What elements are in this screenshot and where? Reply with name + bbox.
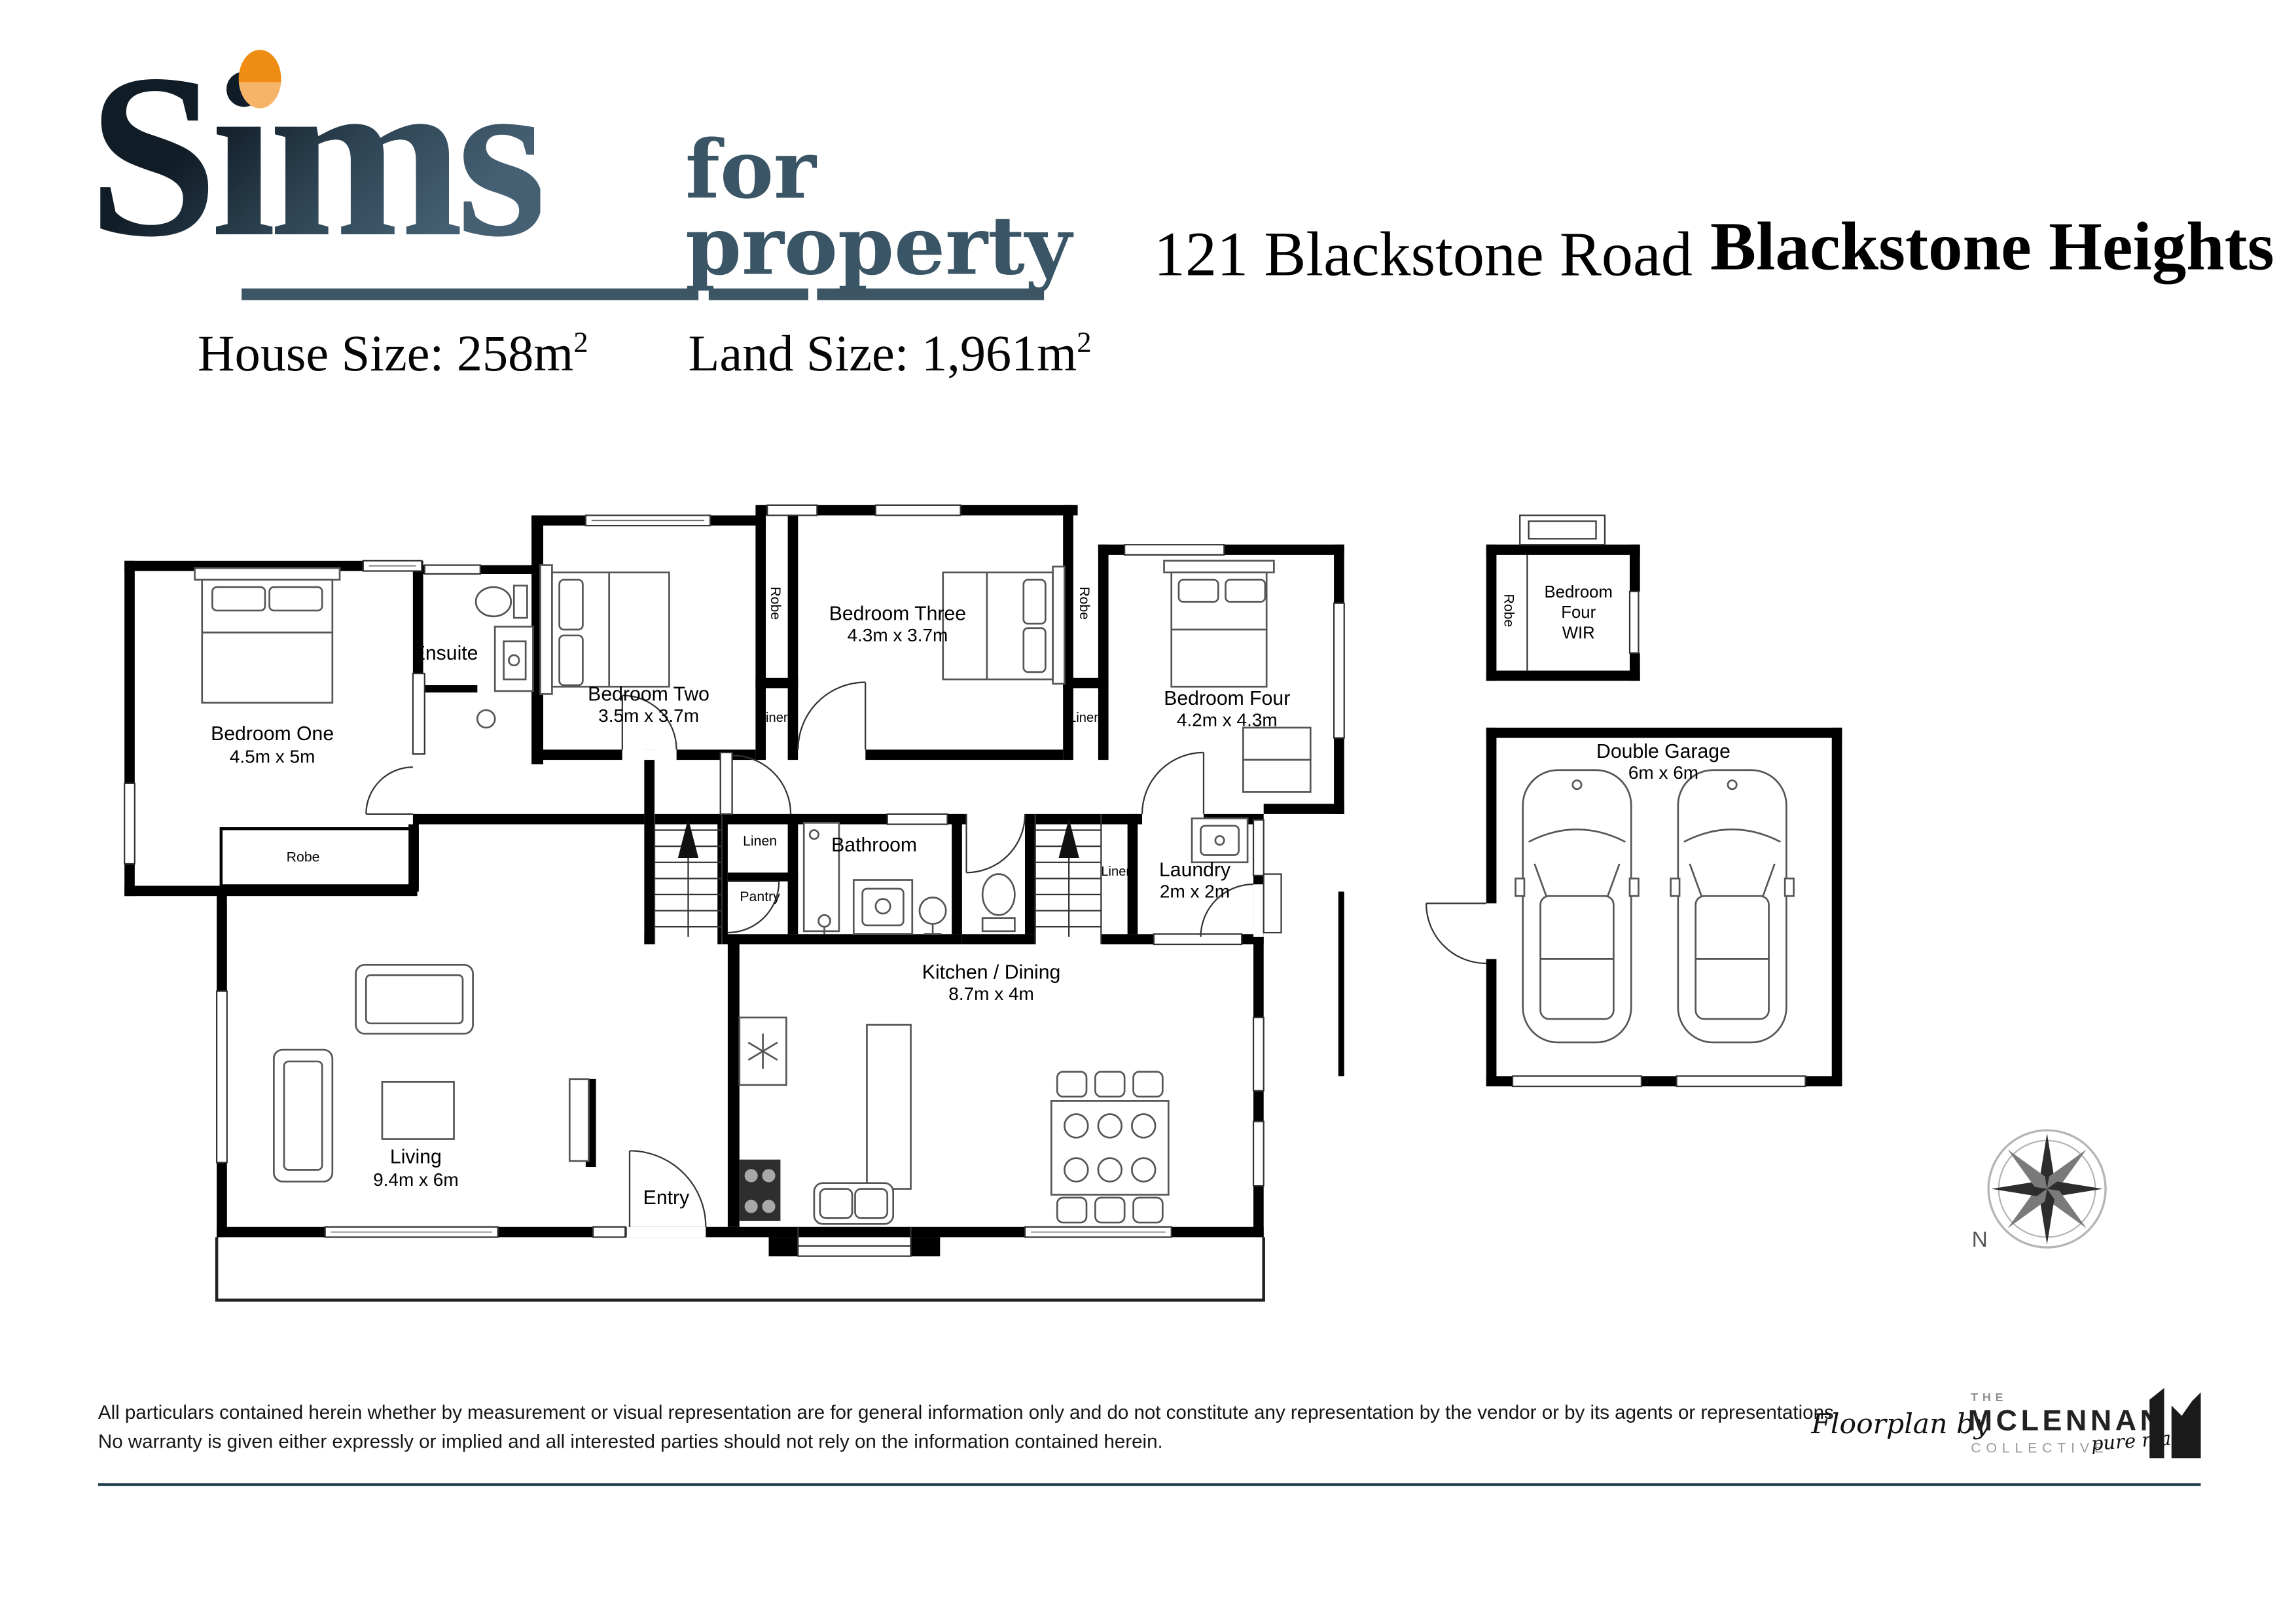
label-living: Living <box>390 1146 442 1168</box>
label-wir-line2: Four <box>1561 605 1596 622</box>
tv-unit-icon <box>569 1079 588 1161</box>
stairs-up-arrow-left <box>678 819 698 858</box>
label-robe-wir: Robe <box>1500 594 1516 627</box>
label-linen-three: Linen <box>743 834 777 850</box>
label-bedroom-two: Bedroom Two <box>588 683 709 705</box>
label-wir-line3: WIR <box>1562 625 1595 643</box>
label-bedroom-one-dims: 4.5m x 5m <box>230 747 315 767</box>
label-laundry-dims: 2m x 2m <box>1160 882 1230 902</box>
label-linen-four: Linen <box>1101 864 1133 878</box>
ensuite-fixtures <box>476 586 533 728</box>
label-pantry: Pantry <box>740 889 780 906</box>
floorplan-drawing <box>0 0 2296 1622</box>
label-bedroom-two-dims: 3.5m x 3.7m <box>598 705 699 726</box>
label-bathroom: Bathroom <box>831 834 917 856</box>
bed-four-icon <box>1164 561 1311 792</box>
kitchen-fixtures <box>740 1018 911 1246</box>
stove-icon <box>740 1160 781 1221</box>
bed-three-icon <box>943 567 1065 684</box>
footer-divider <box>98 1483 2201 1486</box>
bed-one-icon <box>195 568 340 703</box>
label-living-dims: 9.4m x 6m <box>373 1170 459 1190</box>
label-compass-north: N <box>1972 1228 1988 1253</box>
furniture <box>195 515 2106 1300</box>
label-linen-two: Linen <box>1069 710 1101 724</box>
page: Sims for property House Size: 258m2 Land… <box>0 0 2296 1622</box>
mclennan-m-mark-icon <box>2147 1385 2205 1461</box>
label-kitchen-dining-dims: 8.7m x 4m <box>948 984 1034 1004</box>
label-bedroom-three: Bedroom Three <box>829 603 966 625</box>
label-bedroom-three-dims: 4.3m x 3.7m <box>847 625 948 645</box>
toilet-icon <box>982 874 1014 931</box>
label-laundry: Laundry <box>1159 859 1230 881</box>
label-bedroom-four: Bedroom Four <box>1164 687 1290 709</box>
label-double-garage: Double Garage <box>1596 740 1731 762</box>
disclaimer-line-1: All particulars contained herein whether… <box>98 1401 1839 1423</box>
car-one-icon <box>1516 770 1639 1043</box>
stairs-up-arrow-right <box>1058 819 1079 858</box>
label-kitchen-dining: Kitchen / Dining <box>922 961 1061 984</box>
label-robe-bedroom-one: Robe <box>287 850 320 866</box>
label-bedroom-one: Bedroom One <box>211 722 334 745</box>
mclennan-collective: COLLECTIVE <box>1971 1440 2109 1457</box>
label-double-garage-dims: 6m x 6m <box>1628 763 1698 783</box>
mclennan-the: THE <box>1971 1391 2007 1404</box>
deck-outline <box>217 1237 1264 1300</box>
floorplan-by-text: Floorplan by <box>1811 1408 1990 1440</box>
label-wir-line1: Bedroom <box>1544 584 1612 602</box>
dining-table-icon <box>1051 1072 1168 1222</box>
bed-two-icon <box>541 565 670 694</box>
label-linen-one: Linen <box>759 710 791 724</box>
label-entry: Entry <box>643 1186 690 1209</box>
label-ensuite: Ensuite <box>412 642 478 664</box>
label-robe-left-strip: Robe <box>766 586 783 620</box>
label-robe-right-strip: Robe <box>1075 586 1092 620</box>
car-two-icon <box>1671 770 1794 1043</box>
coffee-table-icon <box>382 1082 454 1139</box>
compass-icon <box>1988 1130 2106 1247</box>
disclaimer-line-2: No warranty is given either expressly or… <box>98 1431 1163 1453</box>
label-bedroom-four-dims: 4.2m x 4.3m <box>1177 710 1278 730</box>
